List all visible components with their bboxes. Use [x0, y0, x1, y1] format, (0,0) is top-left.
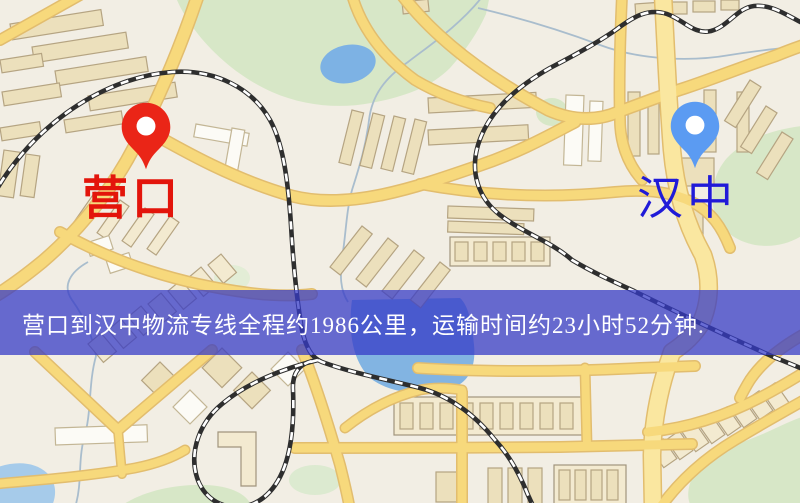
- map-screenshot: 营口 汉中 营口到汉中物流专线全程约1986公里，运输时间约23小时52分钟.: [0, 0, 800, 503]
- map-canvas[interactable]: [0, 0, 800, 503]
- destination-label: 汉中: [637, 176, 737, 222]
- route-info-text: 营口到汉中物流专线全程约1986公里，运输时间约23小时52分钟.: [0, 306, 705, 340]
- route-info-banner: 营口到汉中物流专线全程约1986公里，运输时间约23小时52分钟.: [0, 290, 800, 355]
- destination-pin-hole: [686, 116, 705, 135]
- destination-pin-icon[interactable]: [668, 100, 722, 170]
- origin-pin-hole: [137, 117, 156, 136]
- origin-label: 营口: [82, 176, 182, 222]
- origin-pin-icon[interactable]: [119, 100, 173, 172]
- origin-pin-body: [122, 103, 171, 170]
- destination-pin-body: [671, 102, 719, 168]
